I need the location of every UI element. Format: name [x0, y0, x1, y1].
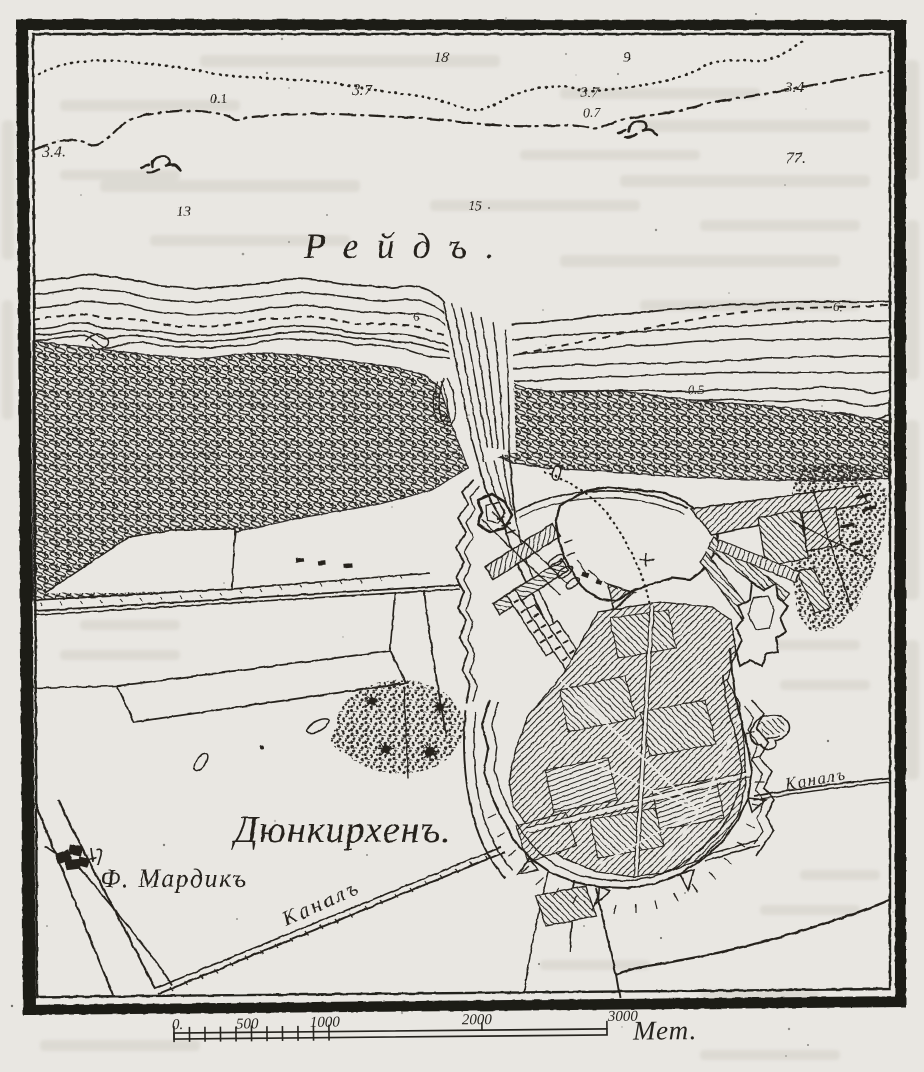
- svg-text:0.: 0.: [172, 1017, 183, 1033]
- svg-text:13: 13: [176, 204, 191, 220]
- svg-text:18: 18: [434, 50, 450, 66]
- svg-text:6.: 6.: [833, 299, 843, 314]
- svg-text:Ф. Мардикъ: Ф. Мардикъ: [100, 864, 248, 893]
- svg-text:Мет.: Мет.: [632, 1015, 698, 1046]
- svg-text:3.7: 3.7: [579, 85, 600, 101]
- svg-text:Дюнкирхенъ.: Дюнкирхенъ.: [231, 809, 452, 851]
- svg-text:77.: 77.: [786, 150, 806, 167]
- svg-text:0.7: 0.7: [583, 106, 602, 121]
- svg-text:3.7: 3.7: [351, 82, 373, 99]
- svg-text:9: 9: [623, 50, 631, 66]
- svg-text:Рейдъ.: Рейдъ.: [303, 226, 512, 266]
- svg-text:3.4.: 3.4.: [41, 144, 66, 161]
- svg-text:1000: 1000: [310, 1014, 341, 1030]
- svg-text:6: 6: [413, 309, 420, 324]
- svg-text:0.1: 0.1: [210, 92, 228, 107]
- svg-text:3.4: 3.4: [784, 80, 804, 96]
- svg-text:15: 15: [468, 199, 482, 214]
- svg-text:0.5: 0.5: [688, 382, 705, 397]
- svg-text:2000: 2000: [462, 1012, 493, 1028]
- svg-text:500: 500: [236, 1016, 259, 1032]
